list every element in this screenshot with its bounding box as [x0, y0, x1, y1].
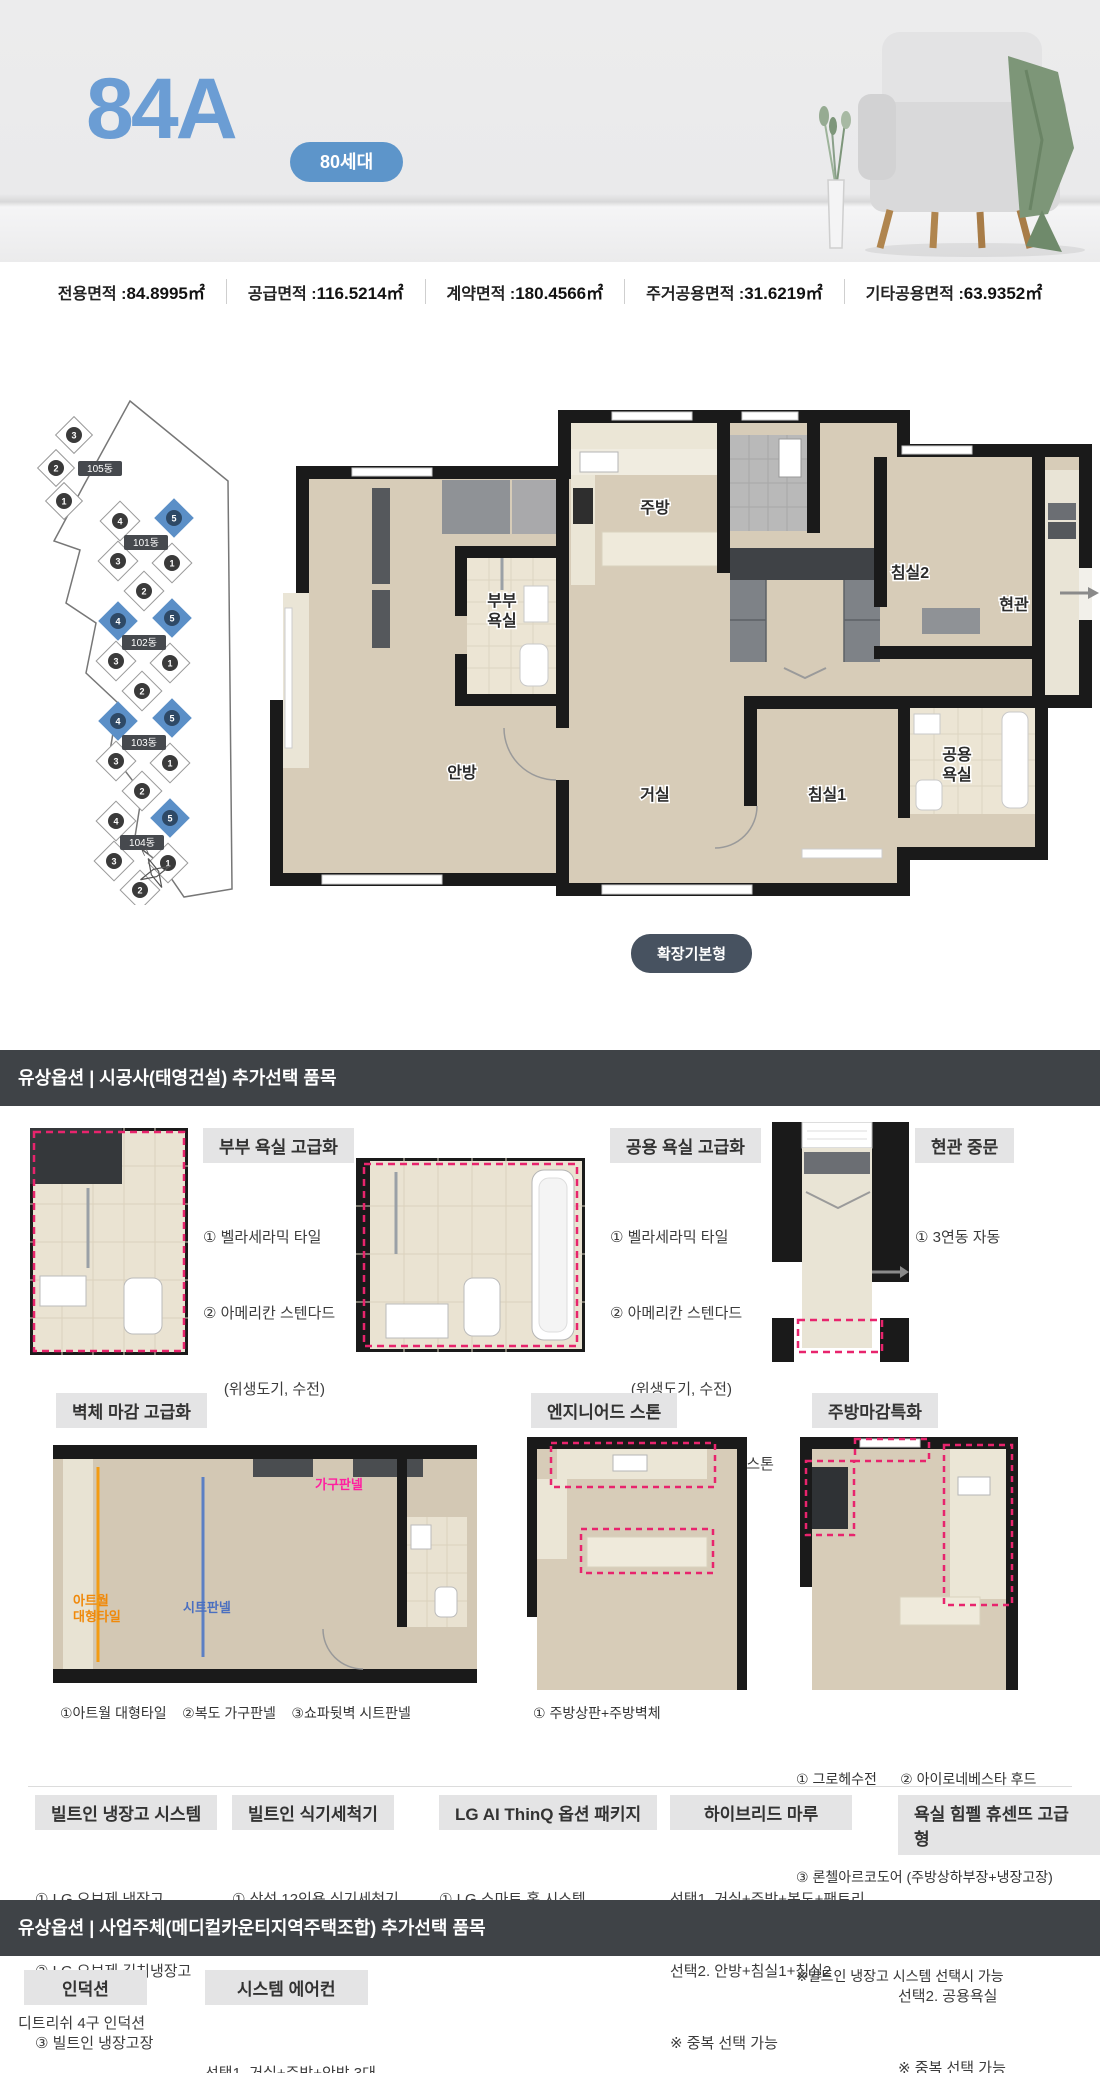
svg-text:2: 2: [139, 687, 144, 697]
svg-text:5: 5: [171, 514, 176, 524]
room-label-entry: 현관: [999, 595, 1029, 614]
option-title-chip: 공용 욕실 고급화: [610, 1128, 761, 1163]
option-title-chip: 욕실 힘펠 휴센뜨 고급형: [898, 1795, 1100, 1855]
hero-header: 84A 80세대: [0, 0, 1100, 262]
svg-text:1: 1: [167, 759, 172, 769]
svg-text:3: 3: [115, 557, 120, 567]
induction-item: 디트리쉬 4구 인덕션: [18, 2012, 145, 2037]
svg-text:1: 1: [167, 659, 172, 669]
svg-text:2: 2: [137, 886, 142, 896]
site-map: 3 2 1 105동 4 5 3 1 2 101동 4: [12, 393, 244, 905]
svg-text:5: 5: [169, 614, 174, 624]
engineered-stone-plan-image: [527, 1437, 747, 1690]
section2-header: 유상옵션 | 사업주체(메디컬카운티지역주택조합) 추가선택 품목: [0, 1900, 1100, 1956]
option-title-chip: 시스템 에어컨: [205, 1970, 368, 2005]
svg-text:2: 2: [141, 587, 146, 597]
room-label-living: 거실: [640, 786, 669, 804]
aircon-items: 선택1. 거실+주방+안방 3대 선택2. 거실+주방+안방+침실1+침실2 5…: [205, 2012, 465, 2073]
room-label-cbath: 공용: [942, 746, 972, 764]
svg-text:103동: 103동: [131, 737, 157, 749]
household-count-badge: 80세대: [290, 142, 403, 182]
svg-text:3: 3: [113, 757, 118, 767]
svg-text:4: 4: [113, 817, 118, 827]
master-bath-plan-image: [30, 1128, 188, 1355]
room-label-kitchen: 주방: [640, 499, 670, 517]
svg-text:3: 3: [111, 857, 116, 867]
section1-header: 유상옵션 | 시공사(태영건설) 추가선택 품목: [0, 1050, 1100, 1106]
entry-door-plan-image: [772, 1122, 909, 1362]
option-title-chip: 인덕션: [24, 1970, 147, 2005]
area-item: 전용면적 84.8995㎡: [37, 279, 227, 304]
annotation-sheet-panel: 시트판넬: [183, 1600, 231, 1615]
option-title-chip: 엔지니어드 스톤: [531, 1393, 677, 1428]
option-title-chip: 하이브리드 마루: [670, 1795, 852, 1830]
svg-text:102동: 102동: [131, 637, 157, 649]
option-title-chip: 벽체 마감 고급화: [56, 1393, 207, 1428]
svg-text:5: 5: [169, 714, 174, 724]
option-title-chip: 빌트인 식기세척기: [232, 1795, 394, 1830]
floor-plan: 주방 침실2 현관 부부 욕실 안방 거실 침실1 공용 욕실: [262, 408, 1100, 908]
option-title-chip: 빌트인 냉장고 시스템: [35, 1795, 217, 1830]
option-item-list: ① 3연동 자동: [915, 1175, 1014, 1301]
annotation-art-wall: 아트월: [73, 1593, 109, 1608]
room-label-mbath: 욕실: [487, 612, 516, 630]
svg-text:2: 2: [53, 464, 58, 474]
area-info-bar: 전용면적 84.8995㎡ 공급면적 116.5214㎡ 계약면적 180.45…: [0, 262, 1100, 320]
svg-text:3: 3: [71, 431, 76, 441]
area-item: 계약면적 180.4566㎡: [426, 279, 626, 304]
svg-text:1: 1: [169, 559, 174, 569]
wall-finish-plan-image: 아트월 대형타일 시트판넬 가구판넬: [53, 1437, 477, 1690]
room-label-bed1: 침실1: [808, 785, 846, 804]
area-item: 공급면적 116.5214㎡: [227, 279, 426, 304]
svg-text:1: 1: [61, 497, 66, 507]
section-divider: [28, 1786, 1072, 1787]
svg-text:101동: 101동: [133, 537, 159, 549]
option-item-list: 선택1. 부부욕실 선택2. 공용욕실 ※ 중복 선택 가능: [898, 1865, 1100, 2073]
svg-text:2: 2: [139, 787, 144, 797]
svg-text:5: 5: [167, 814, 172, 824]
annotation-furniture-panel: 가구판넬: [315, 1477, 363, 1492]
brochure-page: 84A 80세대 전용면적 84.8995㎡ 공급면적 116.5214㎡ 계약…: [0, 0, 1100, 2073]
option-title-chip: LG AI ThinQ 옵션 패키지: [439, 1795, 657, 1830]
annotation-art-wall: 대형타일: [73, 1609, 121, 1624]
room-label-mbath: 부부: [487, 592, 517, 610]
stone-caption: ① 주방상판+주방벽체: [533, 1703, 661, 1724]
area-item: 기타공용면적 63.9352㎡: [845, 279, 1064, 304]
armchair-illustration: [790, 10, 1090, 258]
svg-text:4: 4: [115, 617, 120, 627]
room-label-bed2: 침실2: [891, 563, 929, 582]
option-item-list: ① LG 오브제 냉장고 ② LG 오브제 김치냉장고 ③ 빌트인 냉장고장: [35, 1840, 217, 2073]
room-label-master: 안방: [447, 764, 477, 782]
svg-text:105동: 105동: [87, 463, 113, 475]
option-title-chip: 주방마감특화: [812, 1393, 938, 1428]
wall-finish-caption: ①아트월 대형타일 ②복도 가구판넬 ③쇼파뒷벽 시트판넬: [60, 1703, 411, 1724]
plan-type-badge: 확장기본형: [631, 934, 752, 973]
unit-type-title: 84A: [86, 66, 235, 152]
option-title-chip: 부부 욕실 고급화: [203, 1128, 354, 1163]
svg-text:3: 3: [113, 657, 118, 667]
option-item-list: 선택1. 거실+주방+복도+팬트리 선택2. 안방+침실1+침실2 ※ 중복 선…: [670, 1840, 865, 2073]
option-title-chip: 현관 중문: [915, 1128, 1014, 1163]
svg-text:4: 4: [115, 717, 120, 727]
option-entry-door: 현관 중문 ① 3연동 자동: [915, 1128, 1014, 1301]
svg-text:4: 4: [117, 517, 122, 527]
common-bath-plan-image: [356, 1158, 585, 1352]
room-label-cbath: 욕실: [942, 766, 971, 784]
kitchen-special-plan-image: [800, 1437, 1018, 1690]
area-item: 주거공용면적 31.6219㎡: [625, 279, 845, 304]
